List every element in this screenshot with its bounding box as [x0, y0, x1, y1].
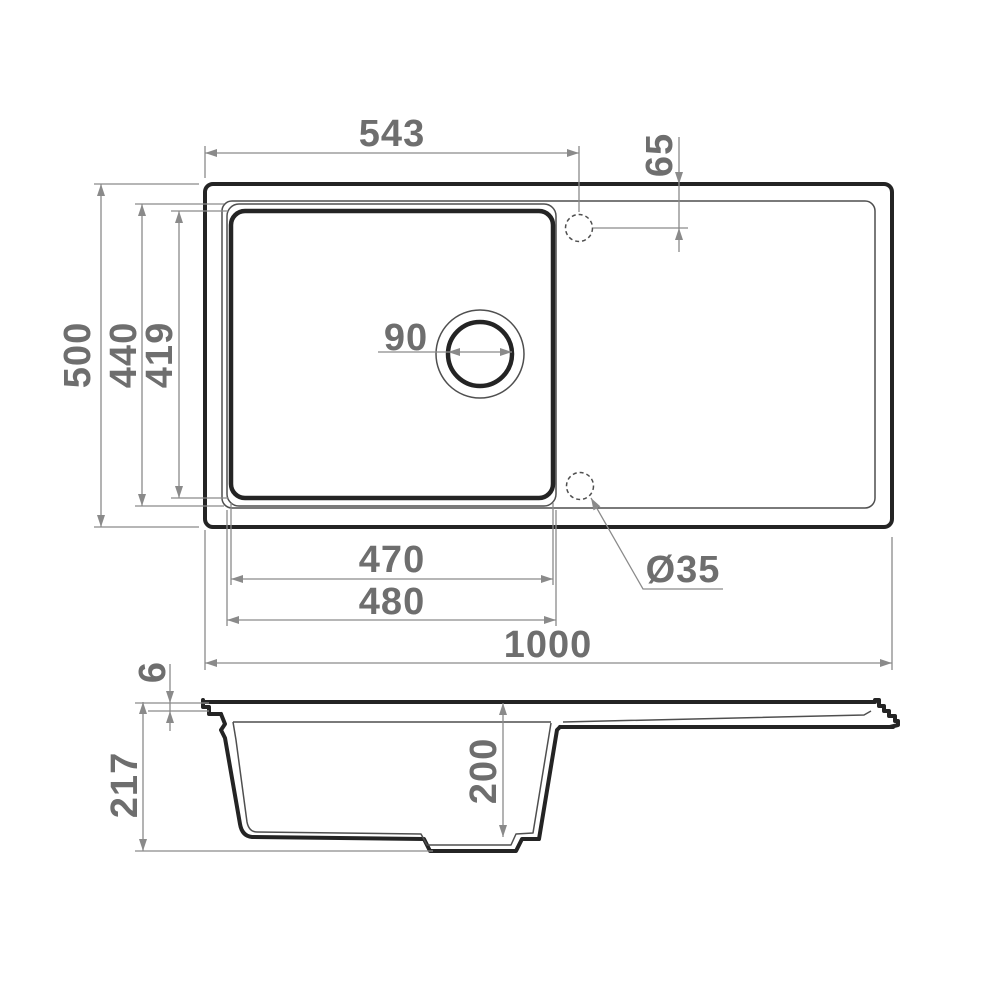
drawing-canvas: 543 65 500 440 419 90 [0, 0, 1000, 1000]
arrowhead [139, 702, 147, 714]
dim-65-label: 65 [639, 133, 681, 177]
plan-dimensions: 543 65 500 440 419 90 [57, 113, 892, 670]
dim-419-label: 419 [139, 322, 181, 388]
dim-200-label: 200 [463, 738, 505, 804]
section-view [203, 700, 898, 851]
arrowhead [97, 184, 105, 196]
dim-o35-label: Ø35 [646, 549, 721, 591]
arrowhead [544, 616, 556, 624]
plan-view [205, 184, 892, 527]
arrowhead [675, 228, 683, 240]
dim-217-label: 217 [104, 752, 146, 818]
rim-inner-edge [222, 201, 875, 508]
section-right-rim-cap [875, 700, 898, 727]
section-dimensions: 6 217 200 [104, 661, 507, 851]
arrowhead [97, 515, 105, 527]
arrowhead [499, 825, 507, 837]
arrowhead [880, 659, 892, 667]
dim-480-label: 480 [359, 581, 425, 623]
dim-6-label: 6 [132, 661, 174, 683]
arrowhead [205, 659, 217, 667]
arrowhead [541, 575, 553, 583]
arrowhead [138, 204, 146, 216]
arrowhead [227, 616, 239, 624]
faucet-hole-top [566, 215, 593, 242]
arrowhead [499, 703, 507, 715]
section-bowl-outer-profile [221, 714, 560, 851]
arrowhead [231, 575, 243, 583]
arrowhead [138, 494, 146, 506]
arrowhead [567, 149, 579, 157]
sink-technical-drawing: 543 65 500 440 419 90 [0, 0, 1000, 1000]
sink-outline [205, 184, 892, 527]
arrowhead [175, 211, 183, 223]
dim-90-label: 90 [384, 317, 428, 359]
dim-470-label: 470 [359, 539, 425, 581]
arrowhead [175, 486, 183, 498]
arrowhead [166, 691, 174, 703]
arrowhead [166, 711, 174, 723]
faucet-hole-bottom [567, 473, 594, 500]
arrowhead [139, 839, 147, 851]
section-drainboard-surface [563, 711, 871, 722]
dim-500-label: 500 [57, 322, 99, 388]
arrowhead [205, 149, 217, 157]
dim-1000-label: 1000 [504, 624, 593, 666]
dim-543-label: 543 [359, 113, 425, 155]
